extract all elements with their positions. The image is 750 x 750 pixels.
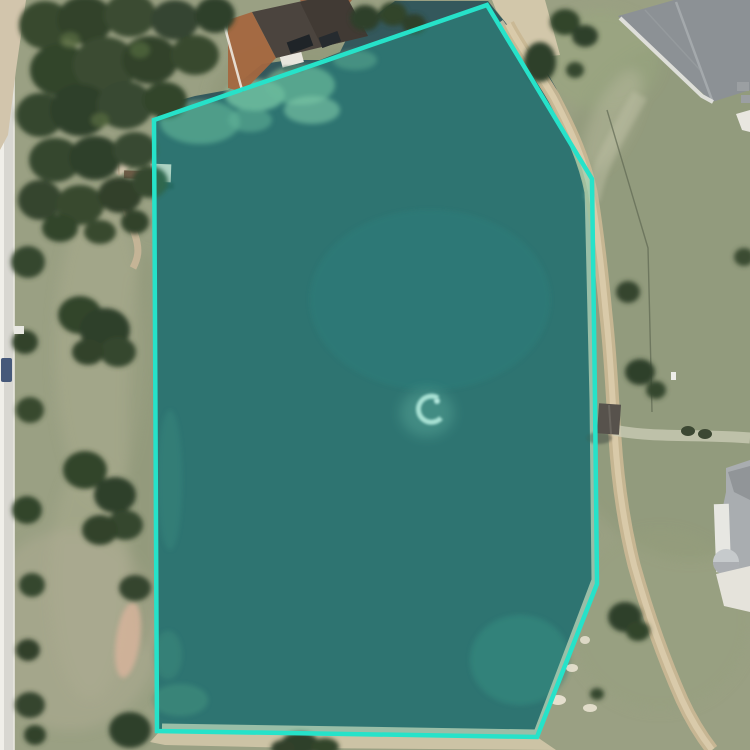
white-roadside-object — [14, 326, 24, 334]
hedge-bush — [681, 426, 695, 436]
map-canvas[interactable] — [0, 0, 750, 750]
parked-car-blue — [1, 358, 12, 382]
satellite-image — [0, 0, 750, 750]
hedge-bush — [698, 429, 712, 439]
white-speck-vehicle — [671, 372, 676, 380]
road-curb — [13, 0, 15, 750]
lake-annotation-polygon[interactable] — [154, 5, 597, 737]
